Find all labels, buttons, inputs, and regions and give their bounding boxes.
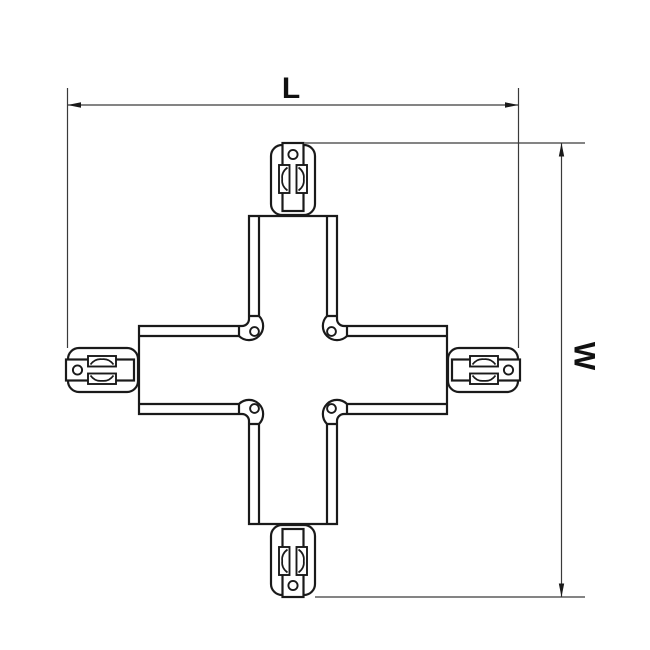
drawing-canvas: L W: [0, 0, 650, 650]
corner-screw-hole-top-left: [250, 327, 259, 336]
length-arrowhead-right: [505, 102, 519, 107]
connector-end-top: [271, 143, 315, 215]
width-arrowhead-bottom: [559, 584, 564, 598]
corner-screw-hole-top-right: [327, 327, 336, 336]
width-dimension-label: W: [568, 342, 601, 371]
corner-screw-hole-bottom-left: [250, 404, 259, 413]
connector-end-right: [448, 348, 520, 392]
cross-outline: [139, 216, 447, 524]
connector-end-left: [66, 348, 138, 392]
corner-screw-hole-bottom-right: [327, 404, 336, 413]
width-arrowhead-top: [559, 143, 564, 157]
technical-drawing: L W: [0, 0, 650, 650]
length-dimension-label: L: [282, 72, 300, 105]
connector-end-bottom: [271, 525, 315, 597]
length-arrowhead-left: [68, 102, 82, 107]
cross-body: [139, 216, 447, 524]
